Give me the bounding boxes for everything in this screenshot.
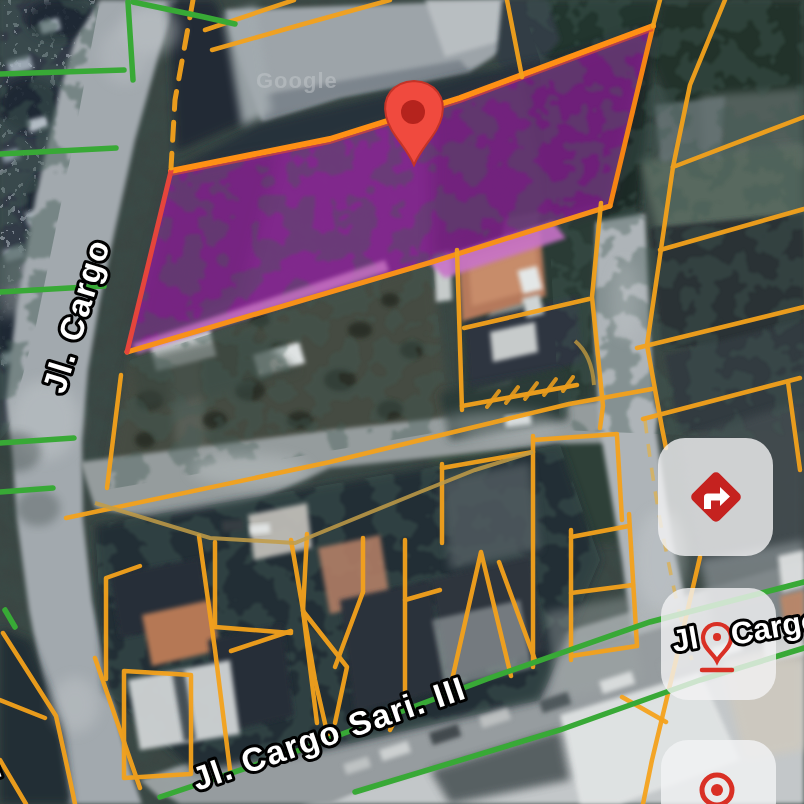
svg-text:Google: Google [256, 68, 338, 93]
